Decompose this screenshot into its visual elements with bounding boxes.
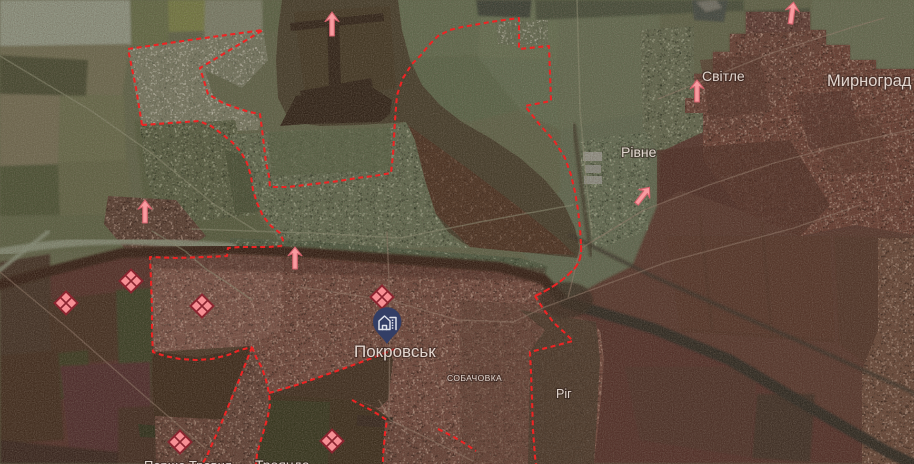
svg-text:Травня: Травня <box>189 458 232 464</box>
svg-text:Мирноград: Мирноград <box>827 72 912 90</box>
svg-text:Ріг: Ріг <box>556 387 572 401</box>
svg-text:Рівне: Рівне <box>621 144 657 160</box>
svg-text:Покровськ: Покровськ <box>354 342 436 361</box>
svg-text:СОБАЧОВКА: СОБАЧОВКА <box>447 373 502 383</box>
svg-text:Троянда: Троянда <box>255 457 310 464</box>
svg-text:Світле: Світле <box>702 68 745 84</box>
svg-text:Перше: Перше <box>144 458 185 464</box>
